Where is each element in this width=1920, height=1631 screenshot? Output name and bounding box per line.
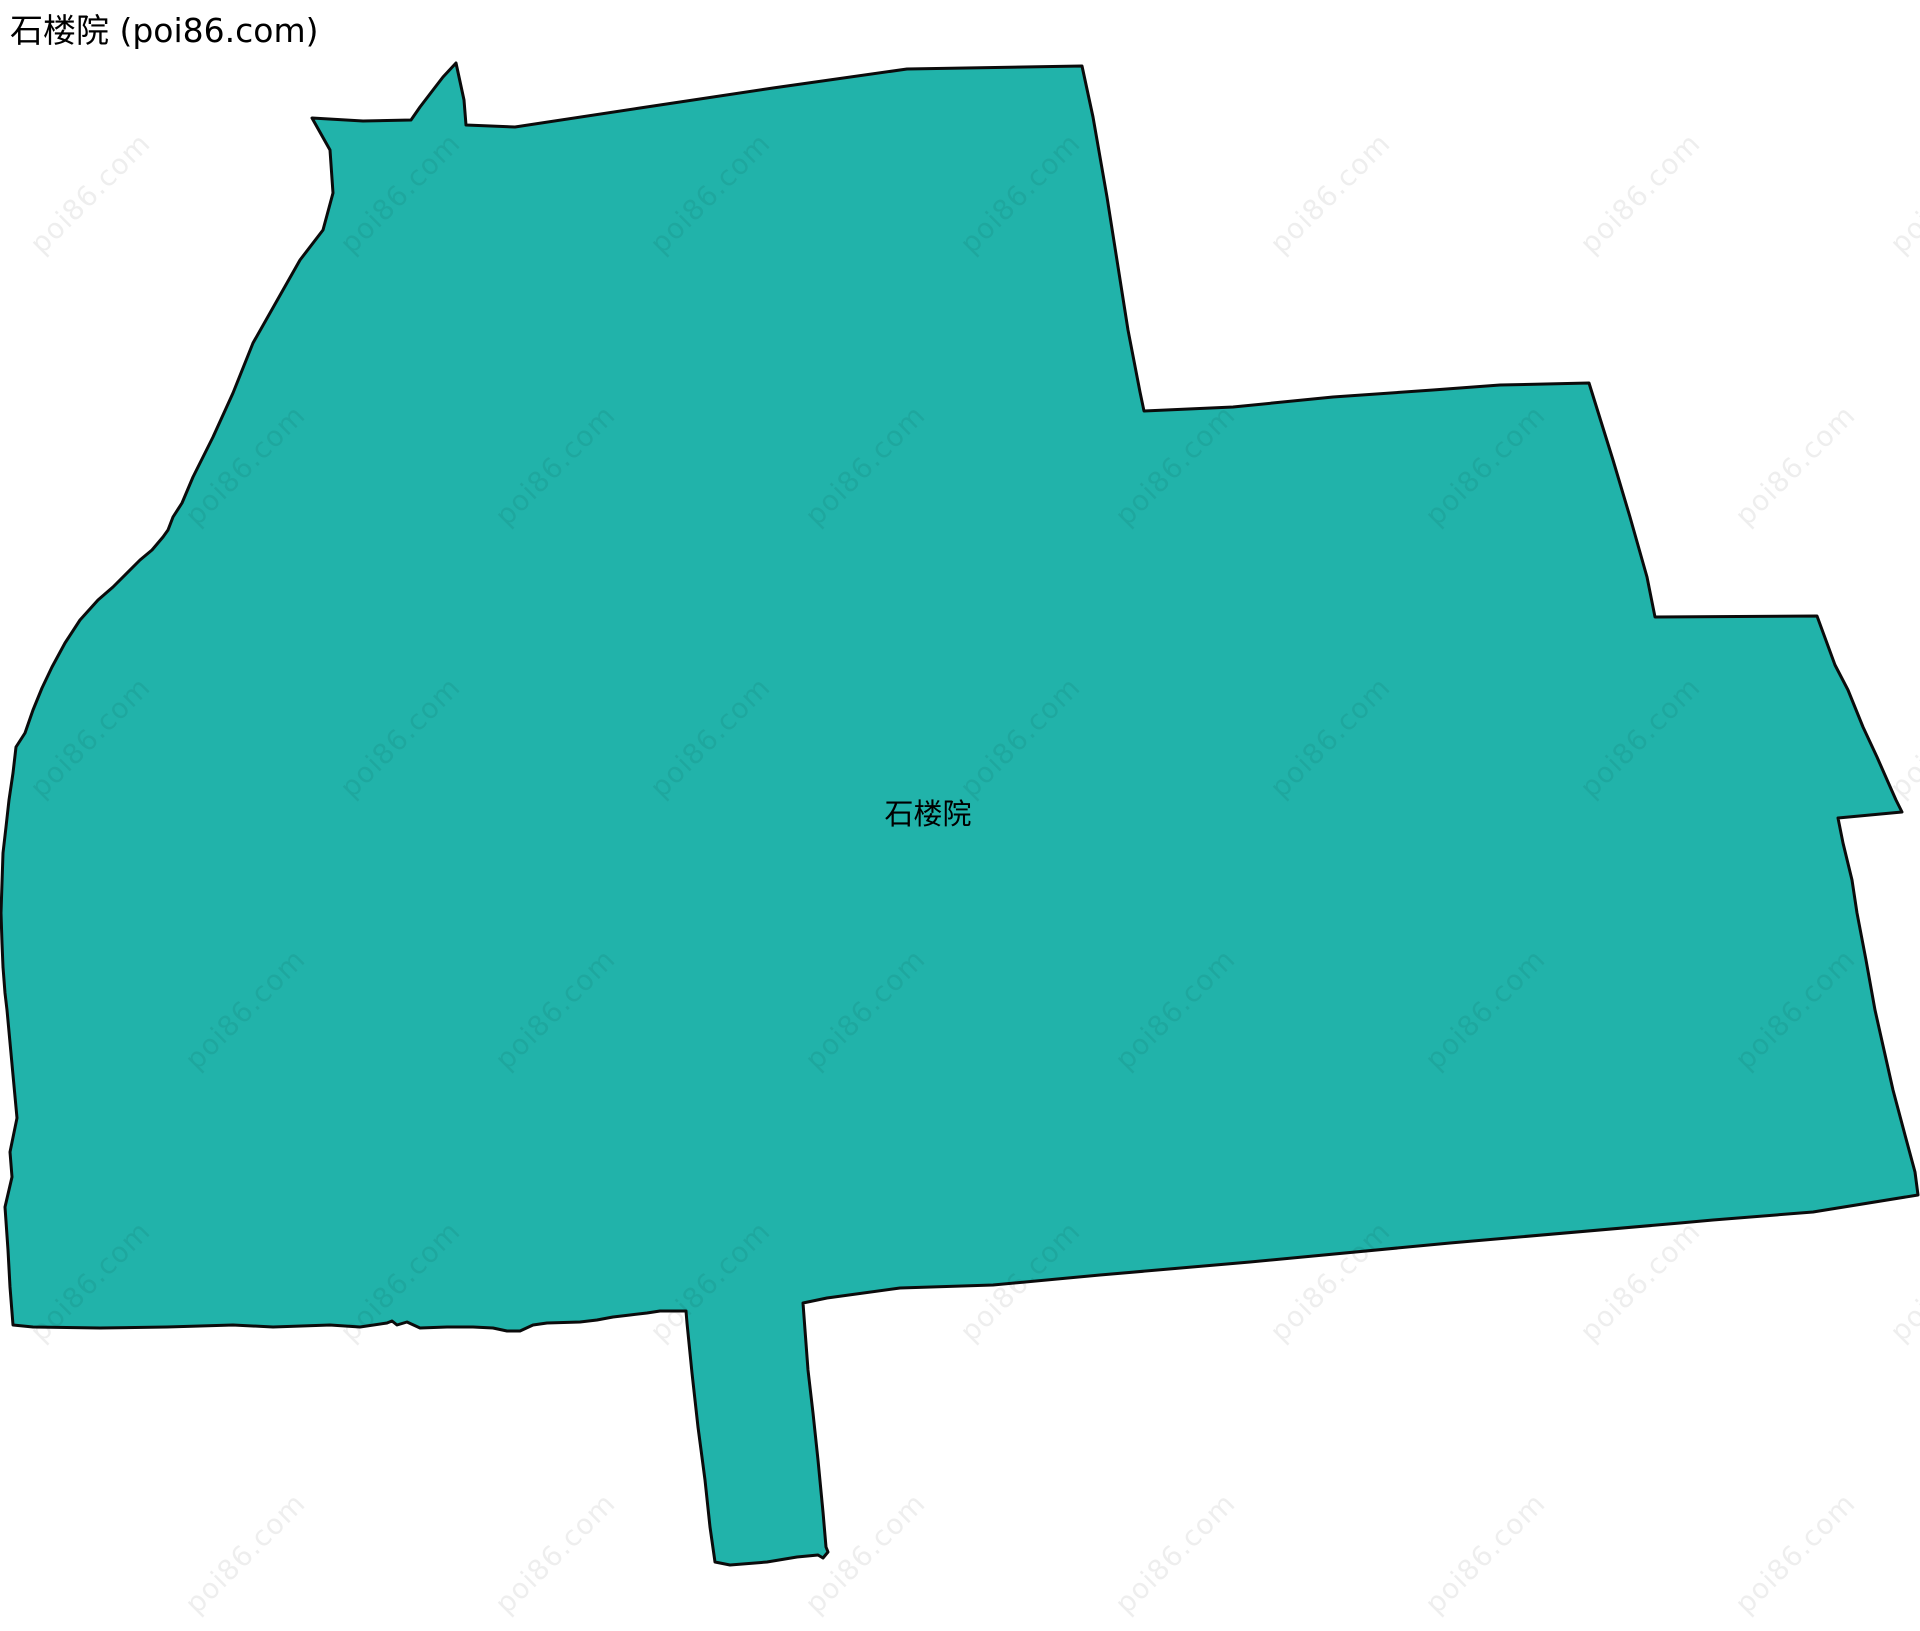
map-canvas: poi86.compoi86.compoi86.compoi86.compoi8… — [0, 0, 1920, 1631]
region-label: 石楼院 — [884, 791, 971, 833]
page-title: 石楼院 (poi86.com) — [10, 12, 319, 50]
